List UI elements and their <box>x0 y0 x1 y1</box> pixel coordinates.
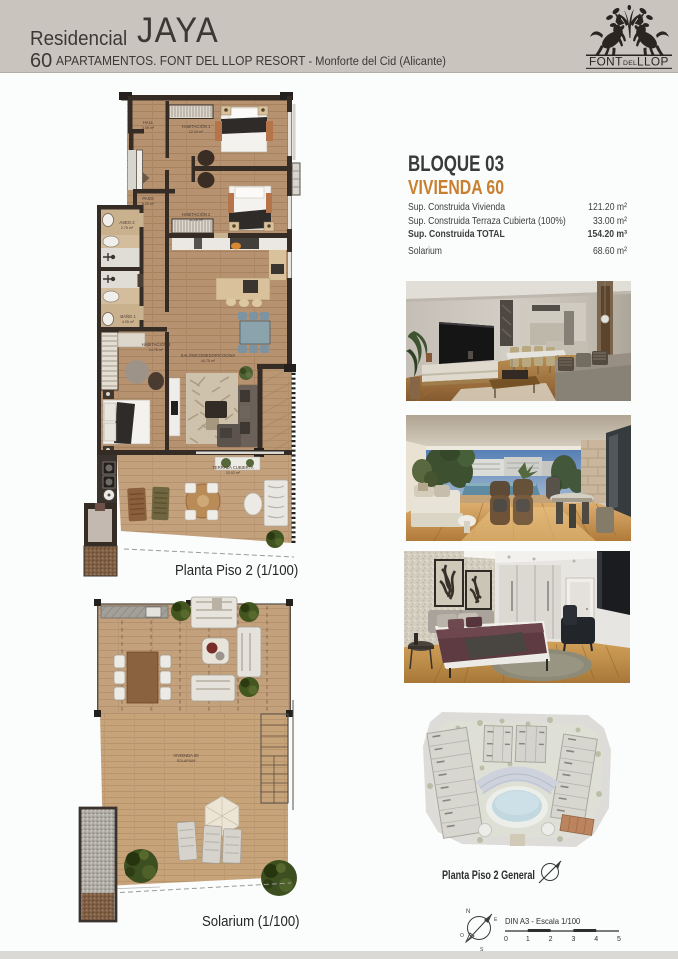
svg-text:33.02 m²: 33.02 m² <box>226 471 241 475</box>
svg-text:11.18 m²: 11.18 m² <box>189 218 204 222</box>
svg-text:3: 3 <box>571 936 575 943</box>
svg-text:HABITACIÓN 2: HABITACIÓN 2 <box>182 212 211 217</box>
svg-text:4.05 m²: 4.05 m² <box>122 320 135 324</box>
svg-text:44.75 m²: 44.75 m² <box>201 359 216 363</box>
svg-text:6.20 m²: 6.20 m² <box>142 202 155 206</box>
svg-text:0: 0 <box>504 936 508 943</box>
svg-text:14.76 m²: 14.76 m² <box>149 348 164 352</box>
svg-text:HABITACIÓN 1: HABITACIÓN 1 <box>182 124 211 129</box>
svg-text:12.19 m²: 12.19 m² <box>189 130 204 134</box>
svg-text:HALL: HALL <box>143 120 154 125</box>
svg-text:O: O <box>460 933 464 939</box>
svg-text:N: N <box>466 909 470 915</box>
svg-text:4: 4 <box>594 936 598 943</box>
svg-text:3.08 m²: 3.08 m² <box>142 126 155 130</box>
svg-text:2: 2 <box>549 936 553 943</box>
svg-text:VIVIENDA 60: VIVIENDA 60 <box>173 753 199 758</box>
svg-text:ASEO 2: ASEO 2 <box>119 220 135 225</box>
svg-text:SALÓN/COMEDOR/COCINA: SALÓN/COMEDOR/COCINA <box>181 353 236 358</box>
svg-text:2.75 m²: 2.75 m² <box>121 226 134 230</box>
svg-text:BAÑO 1: BAÑO 1 <box>120 314 136 319</box>
svg-text:TERRAZA CUBIERTA: TERRAZA CUBIERTA <box>212 465 253 470</box>
svg-text:SOLARIUM: SOLARIUM <box>177 759 196 763</box>
svg-text:HABITACIÓN 3: HABITACIÓN 3 <box>142 342 171 347</box>
svg-text:5: 5 <box>617 936 621 943</box>
svg-text:1: 1 <box>526 936 530 943</box>
svg-text:E: E <box>494 917 498 923</box>
svg-text:PASO: PASO <box>142 196 154 201</box>
